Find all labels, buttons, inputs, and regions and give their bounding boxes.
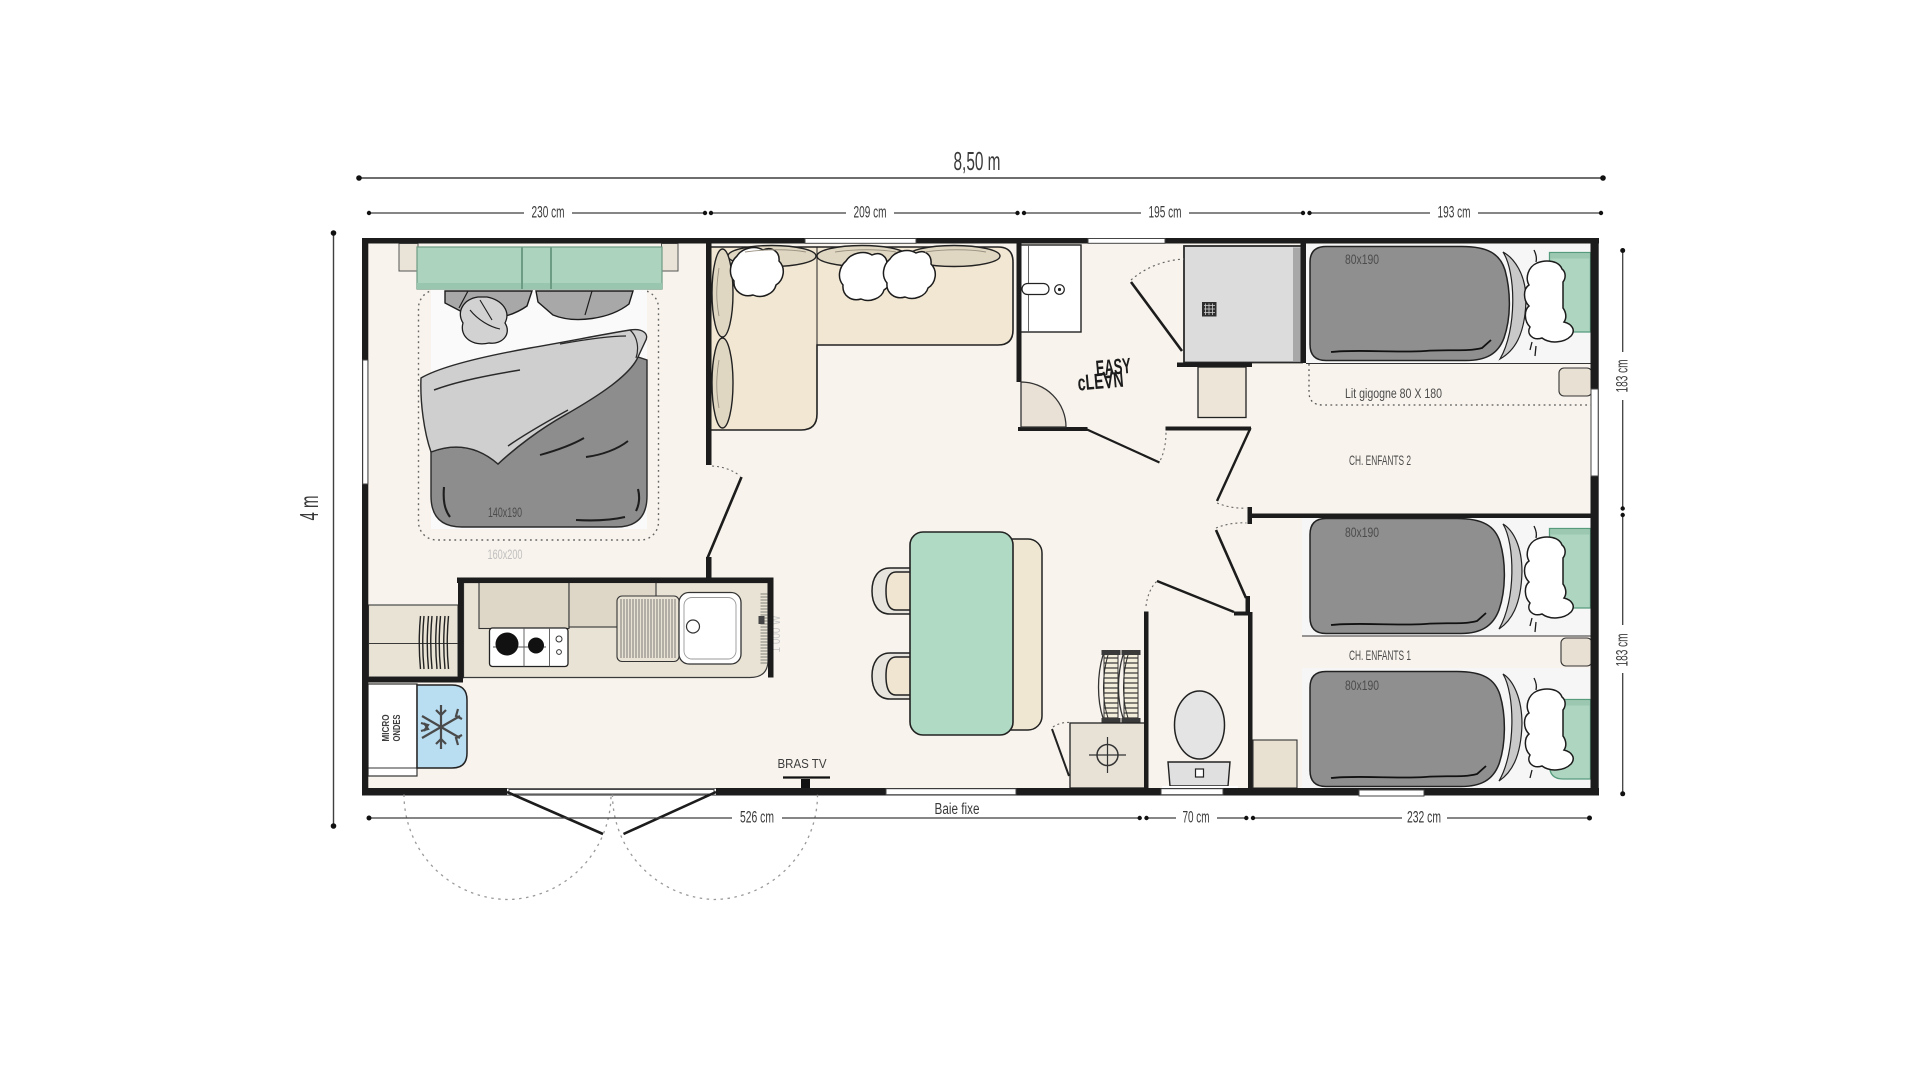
svg-text:CH. ENFANTS 2: CH. ENFANTS 2 — [1349, 452, 1411, 468]
svg-text:BRAS TV: BRAS TV — [778, 756, 827, 771]
svg-text:209 cm: 209 cm — [854, 203, 887, 222]
svg-text:160x200: 160x200 — [488, 546, 523, 562]
svg-text:MICRO: MICRO — [381, 714, 392, 741]
svg-text:8,50 m: 8,50 m — [954, 146, 1001, 176]
svg-text:80x190: 80x190 — [1345, 524, 1379, 540]
svg-text:183 cm: 183 cm — [1613, 360, 1632, 393]
svg-text:526 cm: 526 cm — [740, 808, 774, 827]
svg-text:230 cm: 230 cm — [532, 203, 565, 222]
svg-text:4 m: 4 m — [294, 496, 324, 521]
svg-text:CH. ENFANTS 1: CH. ENFANTS 1 — [1349, 647, 1411, 663]
svg-text:ONDES: ONDES — [392, 714, 403, 741]
svg-text:193 cm: 193 cm — [1438, 203, 1471, 222]
svg-text:Baie fixe: Baie fixe — [935, 801, 980, 818]
svg-text:195 cm: 195 cm — [1149, 203, 1182, 222]
svg-text:cLE∀N: cLE∀N — [1077, 367, 1125, 396]
svg-text:232 cm: 232 cm — [1407, 808, 1441, 827]
svg-text:Lit gigogne 80 X 180: Lit gigogne 80 X 180 — [1345, 385, 1442, 401]
svg-text:140x190: 140x190 — [488, 504, 522, 520]
svg-text:183 cm: 183 cm — [1613, 634, 1632, 667]
svg-text:80x190: 80x190 — [1345, 251, 1379, 267]
svg-text:80x190: 80x190 — [1345, 677, 1379, 693]
svg-text:70 cm: 70 cm — [1183, 808, 1210, 827]
